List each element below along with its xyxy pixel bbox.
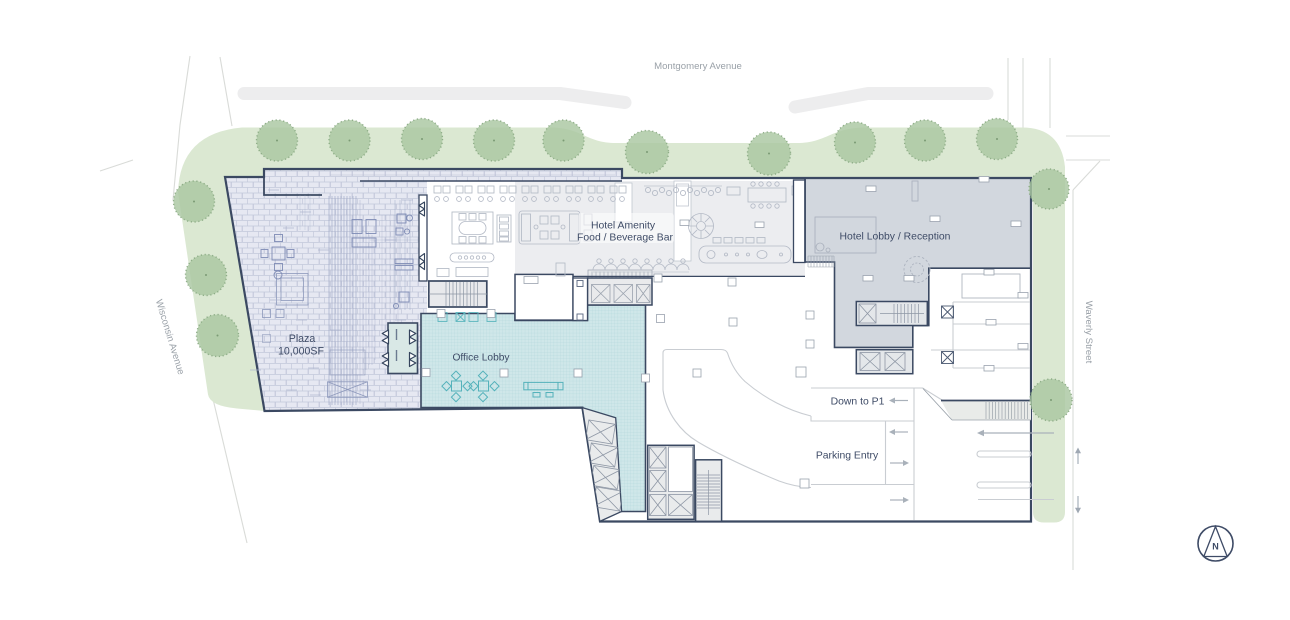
- svg-text:Hotel Amenity: Hotel Amenity: [591, 221, 656, 232]
- svg-text:Down to P1: Down to P1: [831, 397, 885, 408]
- svg-text:Hotel Lobby / Reception: Hotel Lobby / Reception: [840, 232, 951, 243]
- svg-text:10,000SF: 10,000SF: [278, 346, 324, 358]
- svg-text:Montgomery Avenue: Montgomery Avenue: [654, 61, 742, 72]
- svg-text:Plaza: Plaza: [289, 333, 316, 345]
- svg-text:Food / Beverage Bar: Food / Beverage Bar: [577, 233, 673, 244]
- svg-text:Office Lobby: Office Lobby: [452, 353, 510, 364]
- svg-text:Parking Entry: Parking Entry: [816, 451, 879, 462]
- svg-text:Waverly Street: Waverly Street: [1083, 301, 1094, 364]
- svg-text:N: N: [1212, 542, 1219, 552]
